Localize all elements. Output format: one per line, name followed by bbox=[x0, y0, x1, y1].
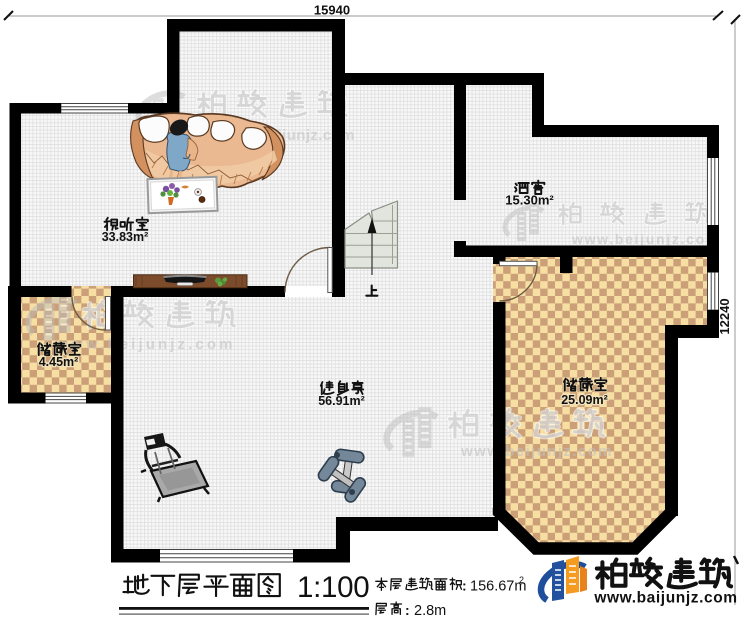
svg-text:15940: 15940 bbox=[314, 3, 350, 18]
svg-text:12240: 12240 bbox=[717, 298, 732, 334]
svg-text:156.67m: 156.67m bbox=[470, 579, 526, 595]
svg-text:www.baijunjz.com: www.baijunjz.com bbox=[593, 590, 737, 607]
svg-text:2: 2 bbox=[519, 575, 524, 585]
svg-text:33.83m²: 33.83m² bbox=[102, 230, 149, 244]
svg-text:25.09m²: 25.09m² bbox=[561, 393, 608, 407]
svg-text::: : bbox=[462, 578, 467, 594]
svg-text:56.91m²: 56.91m² bbox=[318, 394, 365, 408]
svg-text:1:100: 1:100 bbox=[297, 571, 369, 604]
svg-text::: : bbox=[405, 602, 410, 618]
svg-text:4.45m²: 4.45m² bbox=[39, 355, 79, 369]
svg-text:2.8m: 2.8m bbox=[414, 603, 446, 619]
svg-text:www.beijunjz.com: www.beijunjz.com bbox=[460, 443, 613, 460]
svg-text:www.beijunjz.com: www.beijunjz.com bbox=[571, 231, 720, 247]
svg-text:15.30m²: 15.30m² bbox=[505, 193, 554, 208]
svg-text:www.beijunjz.com: www.beijunjz.com bbox=[55, 336, 235, 353]
